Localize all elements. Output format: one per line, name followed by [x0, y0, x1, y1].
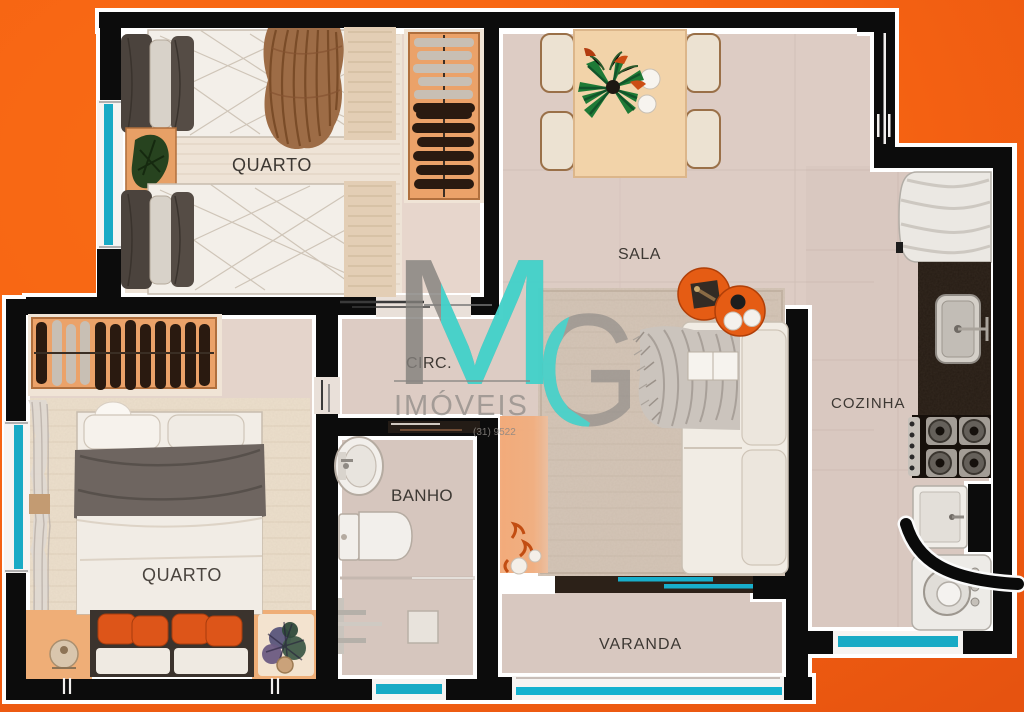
svg-text:QUARTO: QUARTO [142, 565, 222, 585]
svg-text:SALA: SALA [618, 246, 661, 263]
svg-text:(31) 9522: (31) 9522 [473, 427, 516, 438]
svg-text:QUARTO: QUARTO [232, 155, 312, 175]
svg-text:VARANDA: VARANDA [599, 636, 682, 653]
svg-text:BANHO: BANHO [391, 486, 453, 505]
svg-text:COZINHA: COZINHA [831, 395, 906, 412]
svg-text:IMÓVEIS: IMÓVEIS [394, 389, 529, 422]
